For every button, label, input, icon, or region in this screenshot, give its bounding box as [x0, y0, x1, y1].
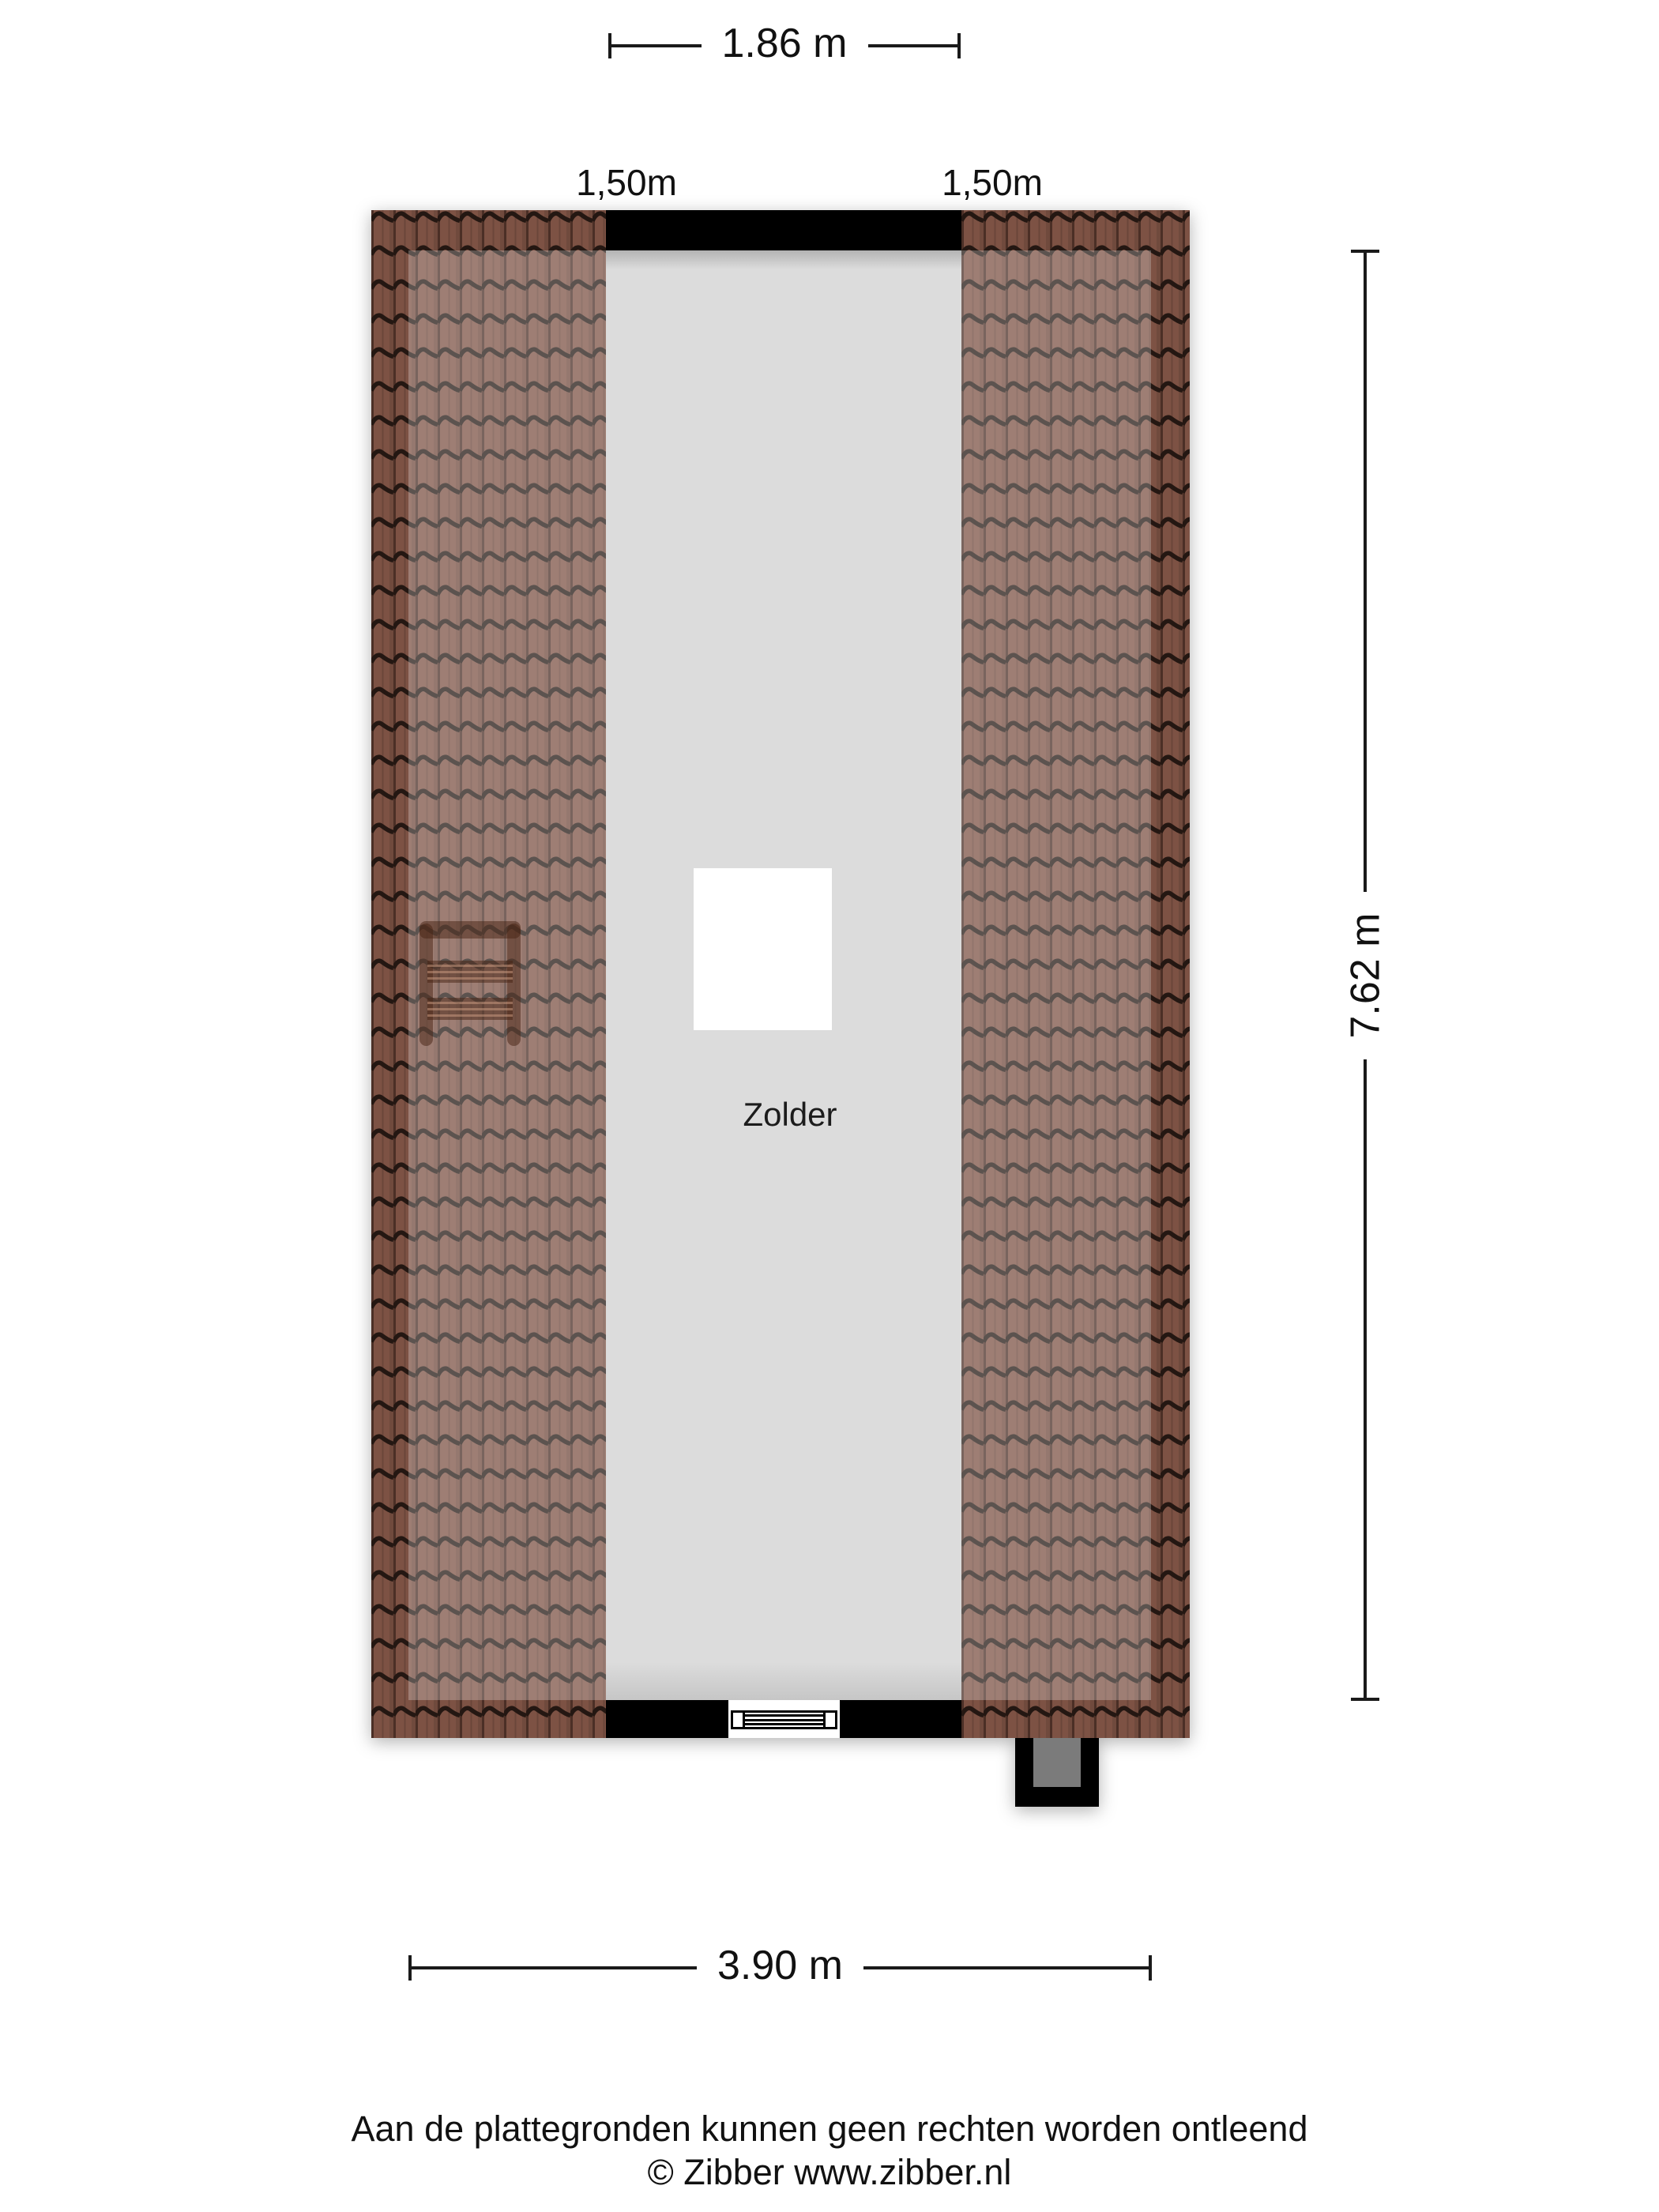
footer-copyright: © Zibber www.zibber.nl	[0, 2150, 1659, 2194]
dimension-top: 1.86 m	[608, 32, 961, 60]
knee-height-left-label: 1,50m	[532, 163, 721, 203]
window-end-pane	[823, 1713, 835, 1727]
window-glazing	[745, 1713, 823, 1727]
chimney-flue	[1033, 1738, 1081, 1787]
dimension-line	[1364, 253, 1367, 892]
dimension-top-label: 1.86 m	[722, 23, 848, 64]
roof-object-rail-left	[419, 924, 433, 1046]
window-symbol	[728, 1700, 840, 1738]
dimension-tick	[957, 33, 961, 58]
dimension-line	[863, 1966, 1149, 1969]
dimension-bottom-label: 3.90 m	[717, 1945, 843, 1986]
room-label: Zolder	[711, 1097, 869, 1133]
dimension-line	[868, 44, 958, 47]
dimension-bottom: 3.90 m	[408, 1954, 1152, 1982]
window-frame	[731, 1710, 837, 1729]
footer-disclaimer: Aan de plattegronden kunnen geen rechten…	[0, 2107, 1659, 2150]
roof-object-slat	[427, 998, 513, 1020]
dimension-tick	[1149, 1955, 1152, 1981]
window-end-pane	[733, 1713, 745, 1727]
roof-object-slat	[427, 961, 513, 983]
footer: Aan de plattegronden kunnen geen rechten…	[0, 2107, 1659, 2194]
roof-object-rail-right	[507, 924, 521, 1046]
dimension-tick	[1351, 1698, 1379, 1701]
dimension-line	[412, 1966, 697, 1969]
roof-object	[419, 921, 521, 1046]
dimension-line	[611, 44, 702, 47]
wall-top	[606, 210, 961, 250]
floorplan-page: 1.86 m 1,50m 1,50m	[0, 0, 1659, 2212]
floorplan: Zolder	[371, 210, 1190, 1738]
roof-object-top-bar	[419, 921, 521, 939]
roof-right	[961, 210, 1190, 1738]
chimney	[1015, 1738, 1099, 1807]
knee-height-right-label: 1,50m	[897, 163, 1087, 203]
dimension-right-label: 7.62 m	[1345, 912, 1386, 1038]
dimension-line	[1364, 1059, 1367, 1698]
dimension-right: 7.62 m	[1350, 250, 1380, 1701]
skylight	[694, 868, 832, 1030]
